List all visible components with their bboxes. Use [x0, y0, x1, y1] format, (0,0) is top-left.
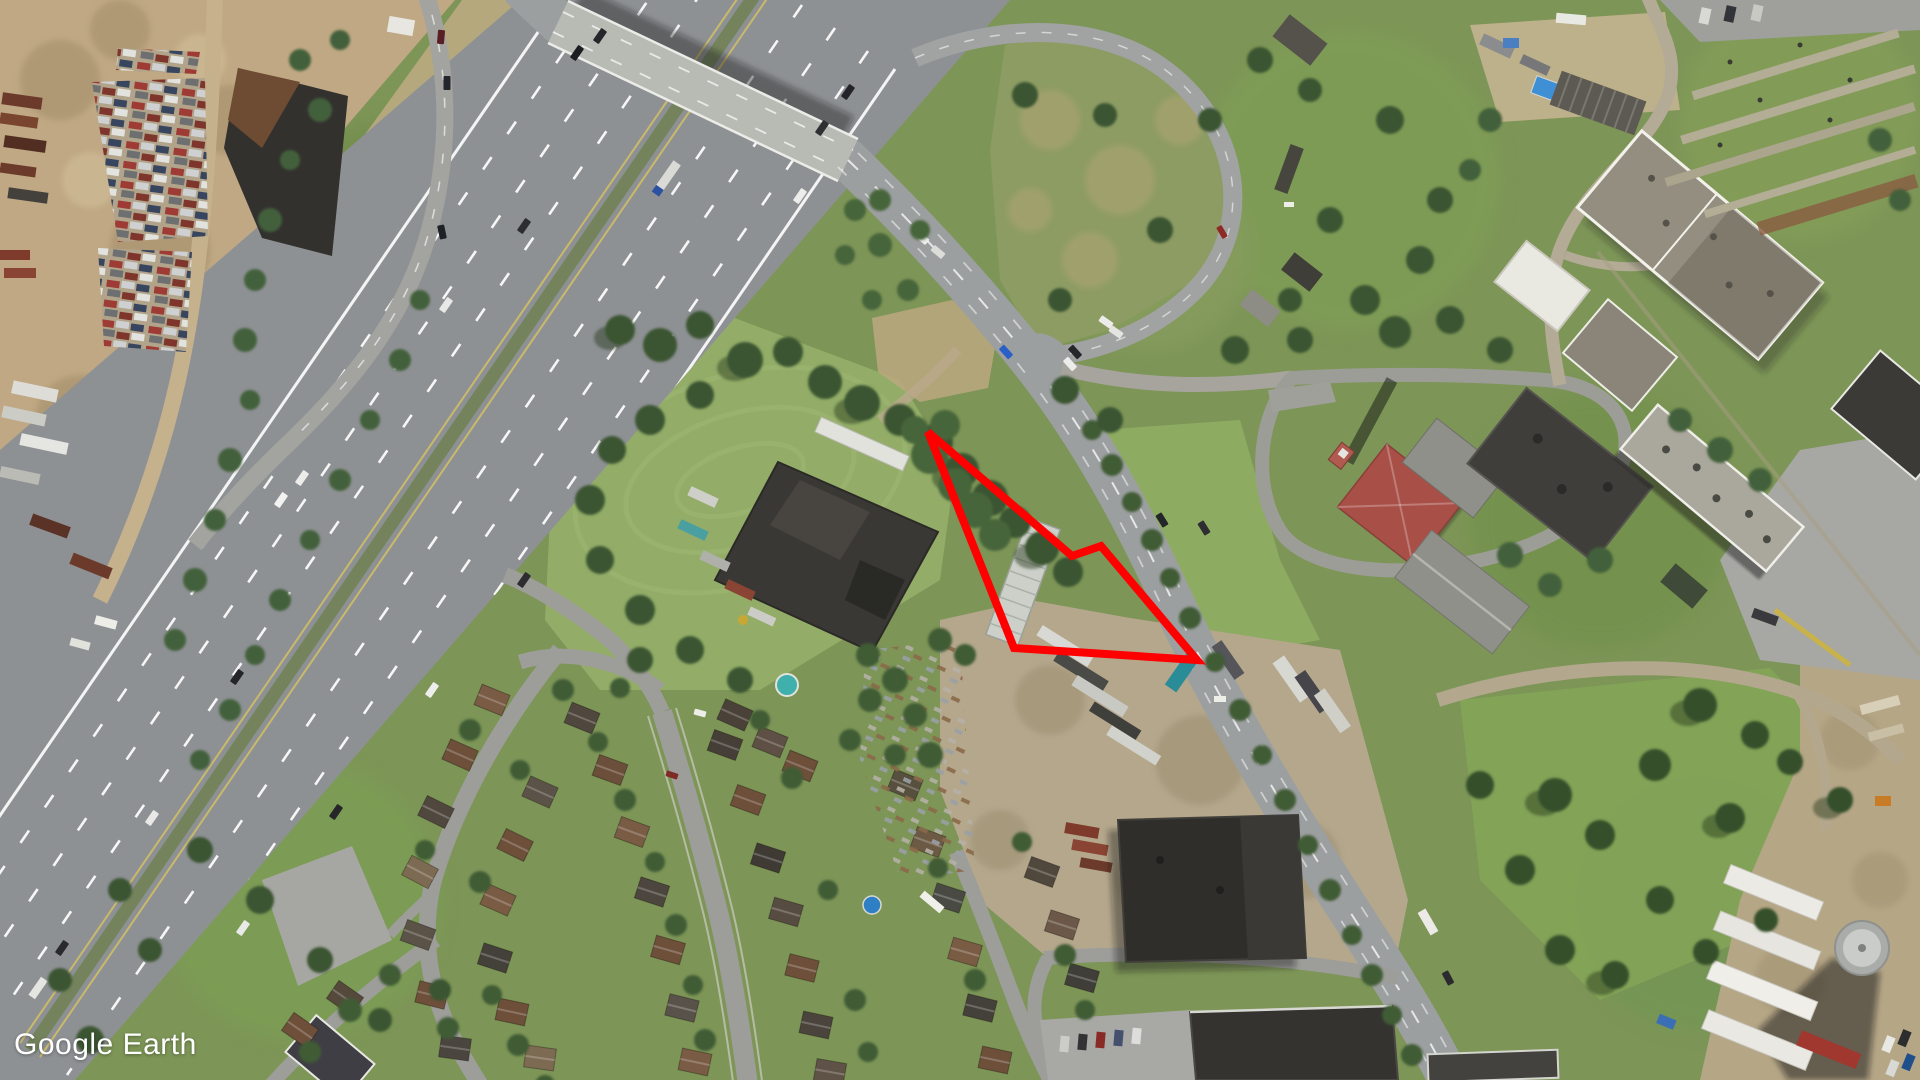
backyard-pool	[776, 674, 798, 696]
industrial-building	[1108, 815, 1306, 972]
satellite-map-canvas[interactable]	[0, 0, 1920, 1080]
google-earth-viewport: Google Earth	[0, 0, 1920, 1080]
backyard-pool	[863, 896, 881, 914]
google-earth-watermark: Google Earth	[14, 1028, 197, 1062]
